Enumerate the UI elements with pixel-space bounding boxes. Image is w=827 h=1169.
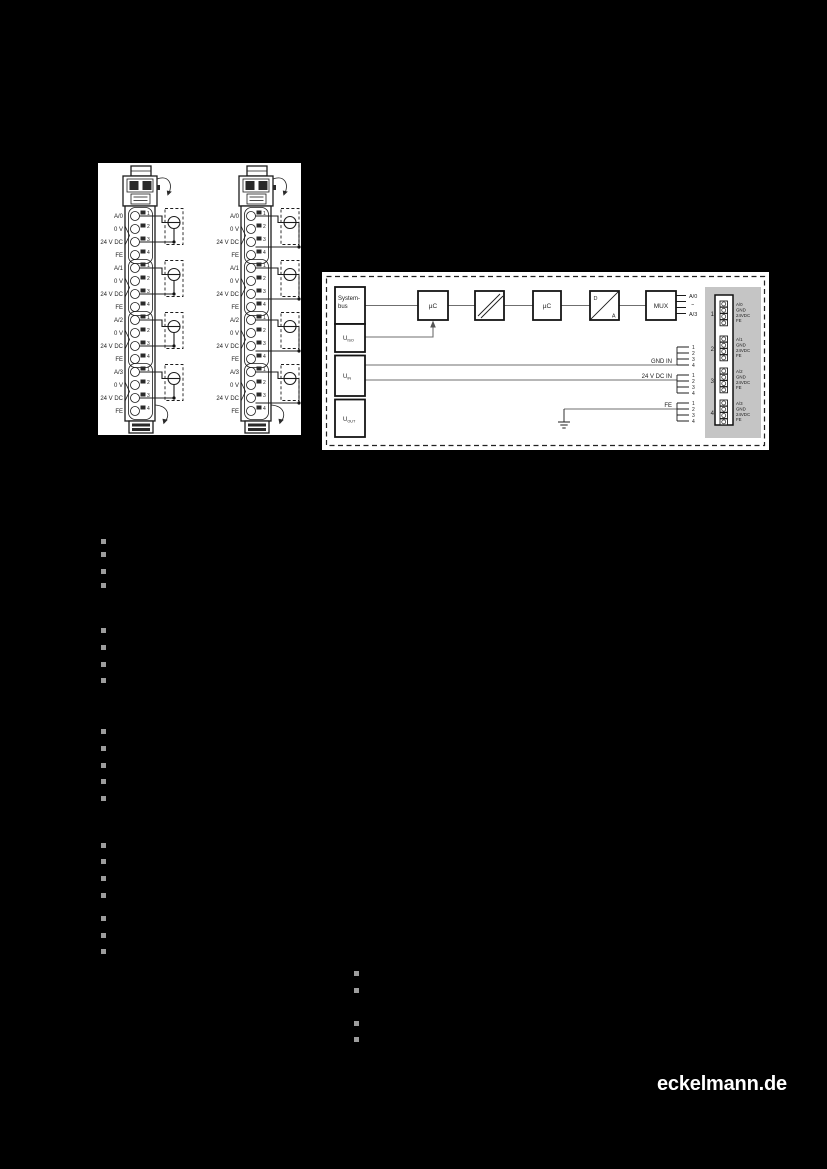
microcontroller-label-1: µC	[429, 303, 438, 310]
list-bullet	[101, 552, 106, 557]
list-bullet	[101, 893, 106, 898]
connector-pin-label: GND	[736, 342, 746, 347]
connector-pin-label: 24VDC	[736, 348, 750, 353]
isolation-box	[475, 291, 504, 320]
terminal-number: 3	[263, 341, 266, 347]
terminal-label: A/0	[230, 214, 240, 220]
terminal-label: FE	[231, 305, 239, 311]
connector-pin-label: A/2	[736, 369, 743, 374]
list-bullet	[101, 746, 106, 751]
terminal-number: 2	[147, 380, 150, 386]
fan-number: 4	[692, 363, 695, 369]
fe-label: FE	[664, 403, 672, 409]
list-bullet	[354, 1037, 359, 1042]
connector-pin-label: 24VDC	[736, 412, 750, 417]
list-bullet	[354, 988, 359, 993]
terminal-label: 24 V DC	[216, 344, 239, 350]
terminal-label: 24 V DC	[100, 344, 123, 350]
terminal-label: 24 V DC	[216, 396, 239, 402]
terminal-number: 4	[147, 406, 150, 412]
connector-pin-label: GND	[736, 406, 746, 411]
connector-pin-label: FE	[736, 318, 742, 323]
terminal-number: 4	[263, 406, 266, 412]
gnd-in-label: GND IN	[651, 359, 672, 365]
connector-group-terminals	[720, 400, 728, 425]
terminal-number: 4	[263, 250, 266, 256]
terminal-number: 4	[147, 302, 150, 308]
terminal-number: 2	[147, 276, 150, 282]
terminal-number: 3	[263, 237, 266, 243]
terminal-label: 0 V	[230, 331, 239, 337]
system-bus-label-line2: bus	[338, 304, 348, 310]
connector-pin-label: A/0	[736, 302, 743, 307]
microcontroller-label-2: µC	[543, 303, 552, 310]
terminal-label: 24 V DC	[216, 292, 239, 298]
connector-pin-label: 24VDC	[736, 313, 750, 318]
list-bullet	[101, 843, 106, 848]
terminal-label: 0 V	[230, 383, 239, 389]
terminal-label: A/2	[230, 318, 240, 324]
terminal-label: 0 V	[114, 279, 123, 285]
terminal-wiring-figure: A/0 0 V 24 V DC FE 1 2 3 4 A/1 0 V 24 V …	[98, 163, 301, 435]
mux-output-top-label: A/0	[689, 294, 697, 300]
terminal-number: 4	[147, 354, 150, 360]
block-diagram-figure: System- bus UISO UIN UOUT µC µC D A MUX …	[322, 272, 769, 450]
terminal-number: 2	[263, 380, 266, 386]
terminal-label: A/3	[114, 370, 124, 376]
da-converter-a-label: A	[612, 314, 616, 320]
connector-group-terminals	[720, 301, 728, 326]
24vdc-in-label: 24 V DC IN	[642, 374, 672, 380]
terminal-label: FE	[231, 357, 239, 363]
terminal-label: 0 V	[230, 227, 239, 233]
list-bullet	[101, 729, 106, 734]
list-bullet	[101, 763, 106, 768]
terminal-label: FE	[231, 409, 239, 415]
list-bullet	[101, 916, 106, 921]
system-bus-label-line1: System-	[338, 296, 360, 302]
terminal-label: FE	[115, 253, 123, 259]
terminal-label: 0 V	[114, 383, 123, 389]
document-page: A/0 0 V 24 V DC FE 1 2 3 4 A/1 0 V 24 V …	[0, 0, 827, 1169]
connector-pin-label: A/1	[736, 337, 743, 342]
terminal-label: A/3	[230, 370, 240, 376]
terminal-number: 4	[263, 302, 266, 308]
list-bullet	[354, 1021, 359, 1026]
list-bullet	[101, 645, 106, 650]
list-bullet	[101, 628, 106, 633]
mux-output-range-tilde: ~	[691, 303, 694, 309]
list-bullet	[101, 933, 106, 938]
terminal-label: FE	[231, 253, 239, 259]
connector-pin-label: FE	[736, 353, 742, 358]
terminal-label: A/1	[114, 266, 124, 272]
list-bullet	[101, 876, 106, 881]
connector-pin-label: GND	[736, 307, 746, 312]
connector-pin-label: FE	[736, 385, 742, 390]
terminal-number: 3	[263, 289, 266, 295]
list-bullet	[101, 583, 106, 588]
terminal-number: 2	[147, 328, 150, 334]
list-bullet	[101, 949, 106, 954]
terminal-number: 2	[263, 276, 266, 282]
terminal-number: 2	[147, 224, 150, 230]
terminal-number: 4	[147, 250, 150, 256]
terminal-label: 24 V DC	[216, 240, 239, 246]
mux-output-bottom-label: A/3	[689, 312, 697, 318]
terminal-number: 2	[263, 328, 266, 334]
list-bullet	[101, 779, 106, 784]
terminal-label: FE	[115, 305, 123, 311]
connector-pin-label: A/3	[736, 401, 743, 406]
terminal-label: A/2	[114, 318, 124, 324]
terminal-label: A/0	[114, 214, 124, 220]
fan-number: 4	[692, 391, 695, 397]
terminal-label: 24 V DC	[100, 396, 123, 402]
terminal-label: FE	[115, 357, 123, 363]
terminal-label: 0 V	[230, 279, 239, 285]
terminal-label: FE	[115, 409, 123, 415]
list-bullet	[354, 971, 359, 976]
terminal-number: 4	[263, 354, 266, 360]
list-bullet	[101, 662, 106, 667]
list-bullet	[101, 796, 106, 801]
connector-pin-label: 24VDC	[736, 380, 750, 385]
connector-pin-label: GND	[736, 374, 746, 379]
da-converter-d-label: D	[594, 296, 598, 302]
terminal-number: 3	[263, 393, 266, 399]
terminal-label: 24 V DC	[100, 240, 123, 246]
mux-label: MUX	[654, 303, 669, 310]
u-out-box	[335, 400, 365, 438]
terminal-label: 0 V	[114, 331, 123, 337]
terminal-number: 2	[263, 224, 266, 230]
terminal-label: 24 V DC	[100, 292, 123, 298]
connector-group-terminals	[720, 368, 728, 393]
list-bullet	[101, 859, 106, 864]
list-bullet	[101, 539, 106, 544]
connector-pin-label: FE	[736, 417, 742, 422]
fan-number: 4	[692, 419, 695, 425]
list-bullet	[101, 569, 106, 574]
terminal-label: 0 V	[114, 227, 123, 233]
connector-group-terminals	[720, 336, 728, 361]
terminal-label: A/1	[230, 266, 240, 272]
eckelmann-logo: eckelmann.de	[657, 1073, 787, 1096]
list-bullet	[101, 678, 106, 683]
